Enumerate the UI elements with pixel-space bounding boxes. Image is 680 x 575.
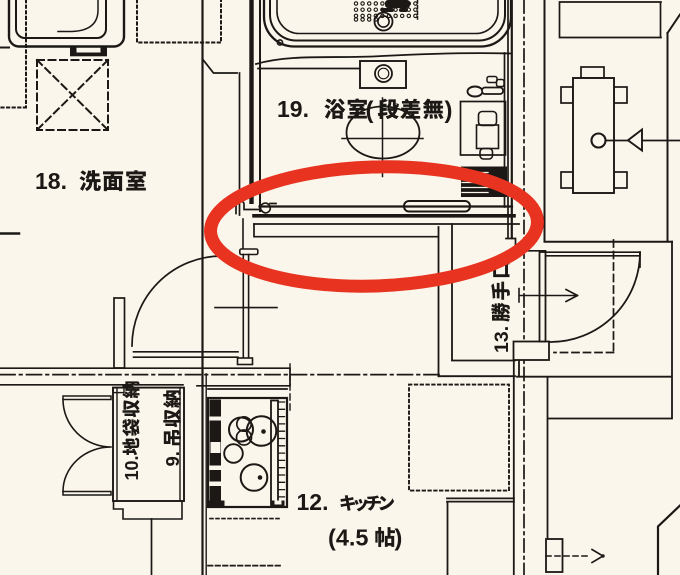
svg-text:(4.5: (4.5 xyxy=(328,525,369,551)
svg-text:12.: 12. xyxy=(297,489,329,515)
svg-text:19.: 19. xyxy=(277,96,309,122)
svg-text:): ) xyxy=(445,97,453,124)
svg-text:9.: 9. xyxy=(162,451,183,466)
svg-text:13.: 13. xyxy=(491,326,513,353)
svg-text:): ) xyxy=(395,525,403,551)
svg-text:18.: 18. xyxy=(35,168,67,194)
svg-text:(: ( xyxy=(366,97,374,124)
svg-text:10.: 10. xyxy=(122,455,142,480)
